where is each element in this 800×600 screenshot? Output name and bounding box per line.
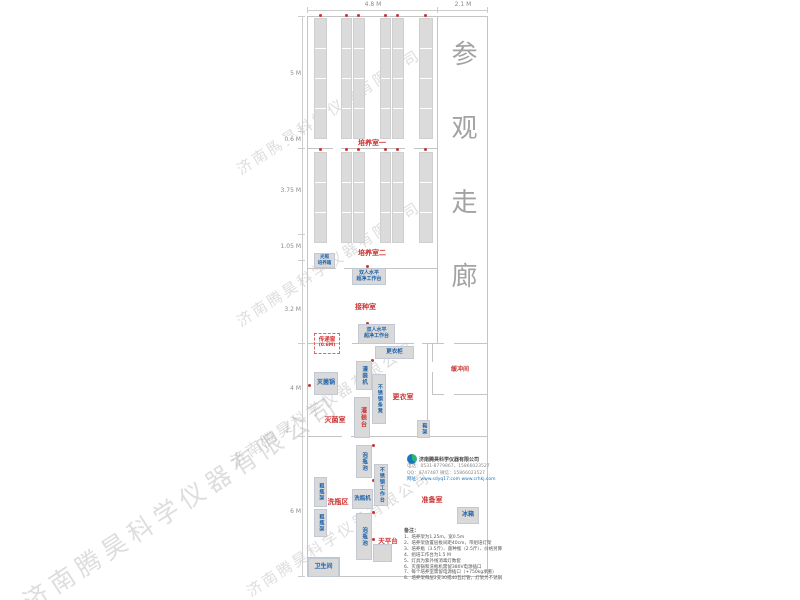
dim-left-3: 3.75 M <box>274 187 302 195</box>
dim-tick <box>298 148 305 149</box>
dim-left-2: 0.6 M <box>274 136 302 144</box>
door-gap <box>333 148 341 149</box>
red-marker-dot <box>384 14 387 17</box>
door-gap <box>414 343 422 344</box>
wardrobe-box: 更衣柜 <box>375 346 414 359</box>
company-header: 济南腾昊科学仪器有限公司 <box>407 454 479 464</box>
sterilizer-box: 灭菌锅 <box>314 372 338 395</box>
culture-rack <box>392 152 404 243</box>
dim-left-1: 5 M <box>274 70 302 78</box>
wall-toilet-east <box>339 557 340 577</box>
culture-rack <box>380 18 391 139</box>
culture-rack <box>419 18 433 139</box>
room-label-culture2: 培养室二 <box>342 248 402 258</box>
dim-left-4: 1.05 M <box>274 243 302 251</box>
stainless-bench-label: 不锈钢条凳 <box>376 384 382 414</box>
room-label-culture1: 培养室一 <box>342 138 402 148</box>
company-website: 网址：www.sdyq17.com www.crhkj.com <box>407 477 479 484</box>
company-info-block: 济南腾昊科学仪器有限公司 电话：0531-8779867，15866023527… <box>407 454 479 484</box>
red-marker-dot <box>319 148 322 151</box>
filling-table-label: 灌装台 <box>359 407 366 428</box>
company-phone: 电话：0531-8779867，15866023527 <box>407 464 479 471</box>
notes-block: 备注： 1、培养架为1.25m，宽0.5m 2、培养架放置层板间距40cm，带组… <box>404 527 494 582</box>
dim-tick <box>298 131 305 132</box>
pass-window-size: (0.6M) <box>315 343 339 348</box>
floor-plan-canvas: 济南腾昊科学仪器有限公司 济南腾昊科学仪器有限公司 济南腾昊科学仪器有限公司 济… <box>0 0 800 600</box>
stainless-bench-box: 不锈钢条凳 <box>372 374 386 424</box>
dim-tick <box>298 16 305 17</box>
company-name: 济南腾昊科学仪器有限公司 <box>419 456 479 463</box>
light-incubator-label-line2: 培养箱 <box>318 261 332 266</box>
dim-top-rooms: 4.8 M <box>352 1 394 9</box>
red-marker-dot <box>308 384 311 387</box>
culture-rack <box>314 18 327 139</box>
culture-rack <box>353 18 365 139</box>
room-label-inoculation: 接种室 <box>338 302 393 312</box>
red-marker-dot <box>396 148 399 151</box>
dim-tick <box>298 260 305 261</box>
dim-left-5: 3.2 M <box>274 306 302 314</box>
dim-tick <box>298 436 305 437</box>
dim-left-6: 4 M <box>274 385 302 393</box>
dim-left-7: 6 M <box>274 508 302 516</box>
soak-pool-box: 泡瓶池 <box>356 513 372 560</box>
culture-rack <box>314 152 327 243</box>
red-marker-dot <box>396 14 399 17</box>
clean-bench-box: 双人水平 超净工作台 <box>358 324 395 344</box>
red-marker-dot <box>384 148 387 151</box>
pass-window-label: 传递窗 <box>315 335 339 343</box>
door-gap <box>405 148 414 149</box>
red-marker-dot <box>319 14 322 17</box>
room-label-sterilization: 灭菌室 <box>315 415 355 425</box>
filling-machine-box: 灌装机 <box>356 361 372 390</box>
door-gap <box>340 343 352 344</box>
red-marker-dot <box>424 14 427 17</box>
dim-tick <box>298 576 305 577</box>
stainless-worktable-label: 不锈钢工作台 <box>378 467 384 503</box>
room-label-changing: 更衣室 <box>383 392 423 402</box>
wall-sterilization-south <box>307 436 488 437</box>
sterilizer-label: 灭菌锅 <box>317 380 335 387</box>
filling-machine-label: 灌装机 <box>361 366 367 386</box>
dim-tick <box>298 343 305 344</box>
wall-culture1-south <box>307 148 438 149</box>
culture-rack <box>341 18 352 139</box>
soak-pool-box: 泡瓶池 <box>356 445 372 478</box>
dim-top-corridor: 2.1 M <box>442 1 484 9</box>
door-gap <box>444 394 454 395</box>
left-dimension-line <box>302 16 303 577</box>
toilet-label: 卫生间 <box>314 564 332 571</box>
culture-rack <box>419 152 433 243</box>
soak-pool-label: 泡瓶池 <box>361 527 367 547</box>
red-marker-dot <box>424 148 427 151</box>
clean-bench-box: 双人水平 超净工作台 <box>352 268 386 285</box>
fridge-box: 冰箱 <box>457 507 479 524</box>
top-dimension-line <box>307 10 488 11</box>
room-label-prep: 准备室 <box>410 495 454 505</box>
pass-window-box: 传递窗 (0.6M) <box>314 333 340 354</box>
shoe-rack-box: 鞋架 <box>417 420 430 438</box>
dim-tick <box>298 234 305 235</box>
culture-rack <box>353 152 365 243</box>
fridge-label: 冰箱 <box>462 512 474 519</box>
dim-tick <box>307 7 308 13</box>
dim-tick <box>437 7 438 13</box>
culture-rack <box>341 152 352 243</box>
wall-outer-left <box>307 16 308 577</box>
room-label-buffer: 缓冲间 <box>434 364 486 373</box>
company-logo-icon <box>407 454 417 464</box>
filling-table-box: 灌装台 <box>354 397 370 438</box>
red-marker-dot <box>357 14 360 17</box>
stainless-worktable-box: 不锈钢工作台 <box>374 464 388 506</box>
corridor-label: 参观走廊 <box>444 40 481 336</box>
red-marker-dot <box>372 511 375 514</box>
red-marker-dot <box>357 148 360 151</box>
notes-header: 备注： <box>404 527 494 534</box>
bottle-rack-label: 粗瓶架 <box>318 514 324 532</box>
wall-buffer-south <box>432 394 488 395</box>
shoe-rack-label: 鞋架 <box>421 423 427 435</box>
culture-rack <box>392 18 404 139</box>
note-item: 3、培养瓶（3.5斤）、菌种瓶（2.5斤）、价格另算 <box>404 547 494 553</box>
red-marker-dot <box>372 444 375 447</box>
wall-outer-right <box>487 16 488 577</box>
bottle-rack-label: 粗瓶架 <box>318 483 324 501</box>
dim-tick <box>487 7 488 13</box>
light-incubator-box: 光照 培养箱 <box>314 253 335 268</box>
toilet-box: 卫生间 <box>308 558 339 577</box>
bottle-rack-box: 粗瓶架 <box>314 509 327 537</box>
door-gap <box>432 362 433 372</box>
clean-bench-label-line2: 超净工作台 <box>356 277 381 283</box>
wall-corridor-west <box>437 16 438 344</box>
bottle-rack-box: 粗瓶架 <box>314 477 327 507</box>
soak-pool-label: 泡瓶池 <box>361 452 367 472</box>
door-gap <box>336 268 344 269</box>
note-item: 2、培养架放置层板间距40cm，带组培灯架 <box>404 541 494 547</box>
balance-table-box <box>373 544 392 562</box>
red-marker-dot <box>345 14 348 17</box>
culture-rack <box>380 152 391 243</box>
door-gap <box>444 343 454 344</box>
note-item: 8、培养架每层2支30或40瓦灯管，灯架为不锈钢 <box>404 576 494 582</box>
bottle-washer-box: 洗瓶机 <box>352 489 373 509</box>
door-gap <box>342 436 351 437</box>
bottle-washer-label: 洗瓶机 <box>354 496 371 502</box>
clean-bench-label-line2: 超净工作台 <box>364 334 389 340</box>
red-marker-dot <box>345 148 348 151</box>
wardrobe-label: 更衣柜 <box>386 349 403 355</box>
